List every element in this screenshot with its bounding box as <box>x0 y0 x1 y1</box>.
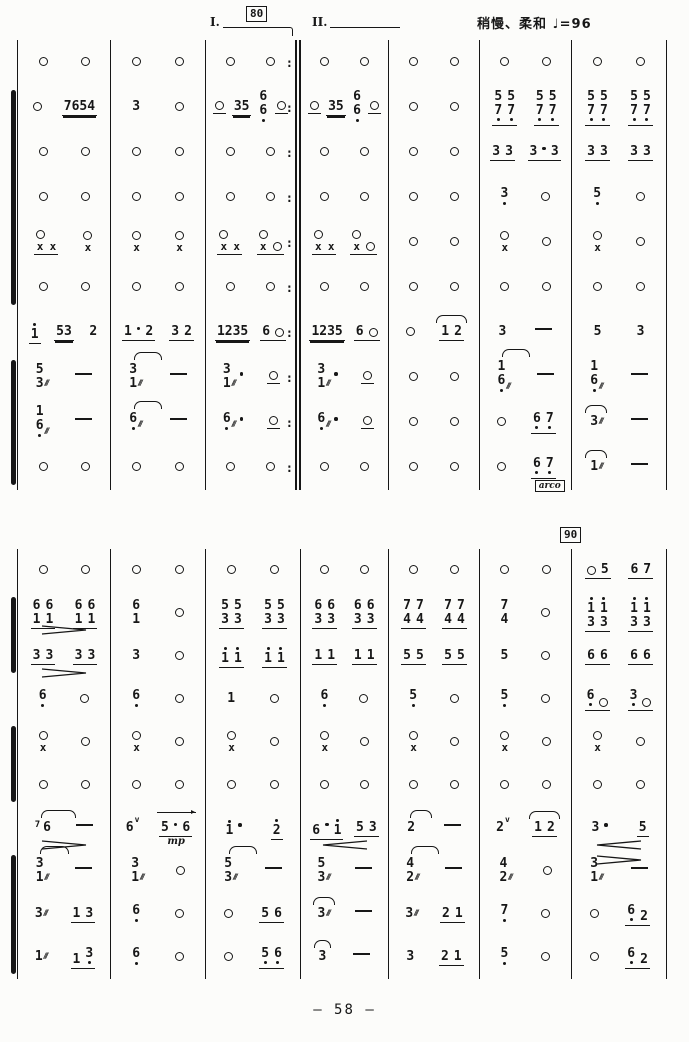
page-number: — 58 — <box>0 1002 689 1018</box>
note-group: 3 <box>404 950 416 965</box>
measure-cell: 321 <box>389 936 480 979</box>
note-group <box>448 372 461 384</box>
note-group: 76 <box>33 821 53 836</box>
note-group: 33 <box>490 145 515 161</box>
note-group <box>539 909 552 921</box>
note-group <box>634 282 647 294</box>
measure-cell <box>389 549 480 592</box>
note-group <box>448 694 461 706</box>
measure-cell: 1111 <box>301 635 389 678</box>
measure-cell: xxx <box>301 220 389 265</box>
measure-cell: 6 <box>301 678 389 721</box>
measure-cell <box>480 265 572 310</box>
note-group: 6363 <box>352 599 377 629</box>
note-group <box>629 463 650 472</box>
note-group: x <box>498 231 511 255</box>
note-group: 5757 <box>585 90 610 126</box>
note-group <box>173 147 186 159</box>
repeat-dots: : <box>286 281 293 295</box>
note-group <box>533 328 554 337</box>
note-group <box>407 237 420 249</box>
note-group: 33 <box>585 145 610 161</box>
measure-cell: 6 <box>111 893 206 936</box>
note-group: 61 <box>130 599 142 628</box>
measure-cell: 57575757 <box>480 85 572 130</box>
staff-group-brace <box>11 597 16 673</box>
note-group <box>318 282 331 294</box>
measure-cell: : <box>206 445 301 490</box>
note-group: 53/// <box>222 857 238 886</box>
note-group <box>442 824 463 833</box>
note-group: x <box>225 731 238 755</box>
note-group <box>629 867 650 876</box>
measure-cell: 74747474 <box>389 592 480 635</box>
note-group: 6 <box>37 689 49 710</box>
staff-group-brace <box>11 90 16 305</box>
note-group: 16/// <box>588 360 604 395</box>
note-group <box>407 372 420 384</box>
note-group: 5353 <box>262 599 287 629</box>
note-group: 31/// <box>34 857 50 886</box>
rehearsal-mark-80: 80 <box>246 6 267 22</box>
volta-2-label: II. <box>312 15 330 29</box>
note-group <box>130 780 143 792</box>
measure-cell: 16/// <box>572 355 667 400</box>
measure-cell: 3 <box>480 310 572 355</box>
measure-cell: 6/// <box>111 400 206 445</box>
measure-cell <box>389 40 480 85</box>
note-group: 74 <box>499 599 511 628</box>
measure-cell: 2 <box>389 807 480 850</box>
note-group <box>37 147 50 159</box>
note-group <box>173 565 186 577</box>
note-group: 13 <box>71 907 96 923</box>
note-group: 35 <box>326 100 346 116</box>
note-group <box>539 651 552 663</box>
note-group: x <box>498 731 511 755</box>
measure-cell: 31/// <box>301 355 389 400</box>
system-2: 5676161616161535353536363636374747474741… <box>17 549 667 979</box>
repeat-dots: : <box>286 101 293 115</box>
note-group: 1313 <box>585 596 610 632</box>
note-group: 67 <box>628 563 653 579</box>
note-group <box>268 694 281 706</box>
note-group <box>224 462 237 474</box>
measure-cell: 31/// <box>572 850 667 893</box>
note-group: 35 <box>232 100 252 116</box>
note-group <box>634 780 647 792</box>
note-group <box>358 192 371 204</box>
measure-cell: 53 <box>572 310 667 355</box>
measure-cell <box>389 445 480 490</box>
note-group: 56 <box>259 947 284 969</box>
measure-cell: 63636363 <box>301 592 389 635</box>
note-group <box>130 147 143 159</box>
measure-cell: 53/// <box>301 850 389 893</box>
note-group <box>37 57 50 69</box>
note-group <box>407 780 420 792</box>
measure-cell: 1///13 <box>18 936 111 979</box>
measure-cell: 3 <box>111 635 206 678</box>
measure-cell: xx <box>111 220 206 265</box>
measure-cell: 5555 <box>389 635 480 678</box>
note-group: 11 <box>312 649 337 665</box>
note-group <box>173 57 186 69</box>
note-group <box>540 57 553 69</box>
measure-cell: 12356 <box>301 310 389 355</box>
note-group: 16/// <box>496 360 512 395</box>
measure-cell: 6 <box>18 678 111 721</box>
note-group <box>225 780 238 792</box>
note-group: 3 <box>628 689 654 711</box>
measure-cell: 12356: <box>206 310 301 355</box>
note-group: 6 <box>319 689 331 710</box>
note-group: 33 <box>73 649 98 665</box>
note-group <box>225 565 238 577</box>
note-group: 6v <box>124 821 142 836</box>
note-group: 6/// <box>221 412 246 433</box>
measure-cell: 7654 <box>18 85 111 130</box>
note-group <box>540 737 553 749</box>
measure-cell: x <box>206 721 301 764</box>
note-group: 5 <box>499 689 511 710</box>
note-group: x <box>81 231 94 255</box>
note-group: 42/// <box>404 857 420 886</box>
note-group <box>308 101 321 114</box>
measure-cell <box>480 40 572 85</box>
note-group: xx <box>34 230 59 255</box>
note-group: 1/// <box>588 460 604 475</box>
note-group <box>407 102 420 114</box>
measure-cell: 1 <box>206 678 301 721</box>
measure-cell: 3///21 <box>389 893 480 936</box>
note-group <box>37 282 50 294</box>
note-group <box>173 462 186 474</box>
note-group <box>539 192 552 204</box>
note-group <box>407 462 420 474</box>
measure-cell: x <box>389 721 480 764</box>
note-group <box>591 57 604 69</box>
note-group <box>591 780 604 792</box>
note-group <box>634 192 647 204</box>
note-group <box>174 866 187 878</box>
note-group: 6 <box>130 689 142 710</box>
measure-cell: 56 <box>206 893 301 936</box>
measure-cell: 42/// <box>389 850 480 893</box>
note-group: 1 <box>225 692 237 707</box>
measure-cell <box>301 175 389 220</box>
note-group: 6161 <box>73 599 98 629</box>
note-group <box>130 462 143 474</box>
measure-cell: x <box>480 220 572 265</box>
decrescendo-hairpin <box>40 840 88 850</box>
measure-cell <box>480 549 572 592</box>
measure-cell: x <box>572 220 667 265</box>
measure-cell: 53/// <box>206 850 301 893</box>
measure-cell: 3333 <box>480 130 572 175</box>
note-group: 7654 <box>62 100 97 116</box>
dynamic-mp: mp <box>167 836 185 847</box>
measure-cell <box>18 130 111 175</box>
note-group <box>448 147 461 159</box>
note-group <box>448 780 461 792</box>
note-group <box>173 694 186 706</box>
note-group: 33 <box>628 145 653 161</box>
measure-cell: 3566 <box>301 85 389 130</box>
crescendo-hairpin <box>321 840 369 850</box>
note-group <box>37 565 50 577</box>
note-group: 1/// <box>33 950 49 965</box>
measure-cell: 42/// <box>480 850 572 893</box>
note-group: 6 <box>585 689 611 711</box>
measure-cell: 13131313 <box>572 592 667 635</box>
note-group <box>264 462 277 474</box>
note-group <box>173 102 186 114</box>
measure-cell: 31///: <box>206 355 301 400</box>
measure-cell: 61616161 <box>18 592 111 635</box>
measure-cell: 6666 <box>572 635 667 678</box>
note-group <box>78 694 91 706</box>
note-group <box>358 737 371 749</box>
note-group: 56mp <box>159 821 192 837</box>
note-group: 5757 <box>628 90 653 126</box>
note-group: 2 <box>271 818 283 840</box>
measure-cell: 6 <box>111 936 206 979</box>
note-group <box>173 192 186 204</box>
note-group <box>629 418 650 427</box>
note-group <box>634 737 647 749</box>
measure-cell: 5 <box>480 678 572 721</box>
measure-cell: 12 <box>206 807 301 850</box>
note-group <box>318 57 331 69</box>
note-group: x <box>130 231 143 255</box>
measure-cell: 62 <box>572 936 667 979</box>
note-group: 6161 <box>31 599 56 629</box>
note-group <box>73 373 94 382</box>
measure-cell <box>301 764 389 807</box>
note-group <box>173 909 186 921</box>
note-group <box>168 373 189 382</box>
note-group: 6/// <box>127 412 143 433</box>
note-group <box>588 909 601 921</box>
note-group: 11 <box>352 649 377 665</box>
note-group: 56 <box>259 907 284 923</box>
measure-cell: 3 <box>301 936 389 979</box>
note-group: 5 <box>499 947 511 968</box>
measure-cell <box>206 764 301 807</box>
measure-cell: 31/// <box>111 850 206 893</box>
measure-cell <box>301 265 389 310</box>
measure-cell <box>389 175 480 220</box>
note-group: 6 <box>130 947 142 968</box>
note-group: x <box>257 230 284 255</box>
measure-cell: 7 <box>480 893 572 936</box>
note-group: 6/// <box>315 412 340 433</box>
measure-cell <box>301 130 389 175</box>
measure-cell: 12 <box>389 310 480 355</box>
note-group: 3 <box>317 950 329 965</box>
note-group <box>361 416 374 429</box>
measure-cell: 5 <box>480 635 572 678</box>
note-group <box>318 462 331 474</box>
note-group <box>498 282 511 294</box>
measure-cell: 53/// <box>18 355 111 400</box>
measure-cell: : <box>206 175 301 220</box>
note-group: 5 <box>591 187 603 208</box>
note-group <box>358 282 371 294</box>
note-group <box>407 192 420 204</box>
note-group <box>448 102 461 114</box>
note-group: 42/// <box>498 857 514 886</box>
measure-cell: 74 <box>480 592 572 635</box>
measure-cell: xxx: <box>206 220 301 265</box>
note-group <box>448 737 461 749</box>
crescendo-hairpin <box>595 840 643 850</box>
measure-cell: 3/// <box>301 893 389 936</box>
note-group <box>448 417 461 429</box>
measure-cell: x <box>111 721 206 764</box>
repeat-dots: : <box>286 461 293 475</box>
note-group <box>173 651 186 663</box>
note-group: 3 <box>497 325 509 340</box>
note-group <box>407 57 420 69</box>
measure-cell: 3/// <box>572 400 667 445</box>
note-group <box>591 282 604 294</box>
note-group <box>224 57 237 69</box>
note-group <box>173 737 186 749</box>
note-group <box>357 694 370 706</box>
note-group <box>37 780 50 792</box>
note-group <box>358 147 371 159</box>
measure-cell: 57575757 <box>572 85 667 130</box>
note-group: 33 <box>31 649 56 665</box>
measure-cell <box>389 400 480 445</box>
note-group <box>448 565 461 577</box>
note-group: 3 <box>589 821 609 836</box>
note-group: 5 <box>407 689 419 710</box>
measure-cell <box>572 265 667 310</box>
note-group: 12 <box>532 821 557 837</box>
measure-cell: 3///13 <box>18 893 111 936</box>
note-group: x <box>37 731 50 755</box>
note-group: 31/// <box>221 363 246 392</box>
note-group <box>130 282 143 294</box>
measure-cell <box>301 445 389 490</box>
note-group <box>37 462 50 474</box>
measure-cell <box>389 355 480 400</box>
measure-cell: 62 <box>572 893 667 936</box>
measure-cell <box>389 265 480 310</box>
measure-cell <box>18 549 111 592</box>
note-group: 3 <box>635 325 647 340</box>
note-group: 11 <box>219 646 244 668</box>
measure-cell: 6 <box>111 678 206 721</box>
note-group: 1235 <box>309 325 344 341</box>
measure-cell <box>18 265 111 310</box>
note-group <box>264 192 277 204</box>
measure-cell <box>111 549 206 592</box>
note-group <box>407 147 420 159</box>
note-group <box>264 57 277 69</box>
note-group <box>318 565 331 577</box>
measure-cell <box>301 549 389 592</box>
note-group <box>173 282 186 294</box>
note-group <box>495 417 508 429</box>
note-group: 66 <box>257 90 269 125</box>
note-group: 3 <box>130 100 142 115</box>
note-group <box>368 101 381 114</box>
note-group: 2v <box>494 821 512 836</box>
note-group <box>268 565 281 577</box>
note-group <box>318 147 331 159</box>
note-group <box>353 867 374 876</box>
note-group <box>448 237 461 249</box>
note-group: x <box>591 731 604 755</box>
note-group <box>358 780 371 792</box>
repeat-dots: : <box>286 146 293 160</box>
measure-cell: 63 <box>572 678 667 721</box>
measure-cell: : <box>206 265 301 310</box>
system-1: :765433566:35665757575757575757:33333333… <box>17 40 667 490</box>
note-group <box>404 327 417 339</box>
measure-cell: 56 <box>206 936 301 979</box>
note-group <box>448 282 461 294</box>
repeat-dots: : <box>286 56 293 70</box>
measure-cell: 3566: <box>206 85 301 130</box>
note-group: 31/// <box>315 363 340 392</box>
note-group <box>79 57 92 69</box>
note-group <box>222 952 235 964</box>
note-group <box>168 418 189 427</box>
note-group: xx <box>217 230 242 255</box>
measure-cell <box>301 40 389 85</box>
measure-cell <box>389 764 480 807</box>
measure-cell: 6153 <box>301 807 389 850</box>
note-group: 5 <box>637 821 649 837</box>
note-group: 67arco <box>531 457 556 479</box>
staff-group-brace <box>11 360 16 485</box>
measure-cell <box>18 175 111 220</box>
note-group <box>539 694 552 706</box>
measure-cell <box>480 764 572 807</box>
measure-cell: 16/// <box>18 400 111 445</box>
repeat-dots: : <box>286 416 293 430</box>
measure-cell <box>18 764 111 807</box>
note-group: 31/// <box>588 857 604 886</box>
measure-cell: 1111 <box>206 635 301 678</box>
note-group <box>540 565 553 577</box>
measure-cell: 1232 <box>111 310 206 355</box>
decrescendo-hairpin <box>40 668 88 678</box>
note-group <box>318 780 331 792</box>
note-group <box>407 282 420 294</box>
note-group <box>130 192 143 204</box>
rehearsal-80-number: 80 <box>250 7 263 20</box>
note-group: 2 <box>405 821 417 836</box>
repeat-dots: : <box>286 191 293 205</box>
note-group: x <box>173 231 186 255</box>
measure-cell <box>18 445 111 490</box>
note-group <box>268 780 281 792</box>
note-group <box>79 565 92 577</box>
note-group <box>79 192 92 204</box>
note-group: 31/// <box>129 857 145 886</box>
measure-cell: : <box>206 130 301 175</box>
volta-2-bracket: II. <box>312 27 400 36</box>
measure-cell: : <box>206 40 301 85</box>
note-group <box>73 867 94 876</box>
volta-1-bracket: I. <box>210 27 293 36</box>
